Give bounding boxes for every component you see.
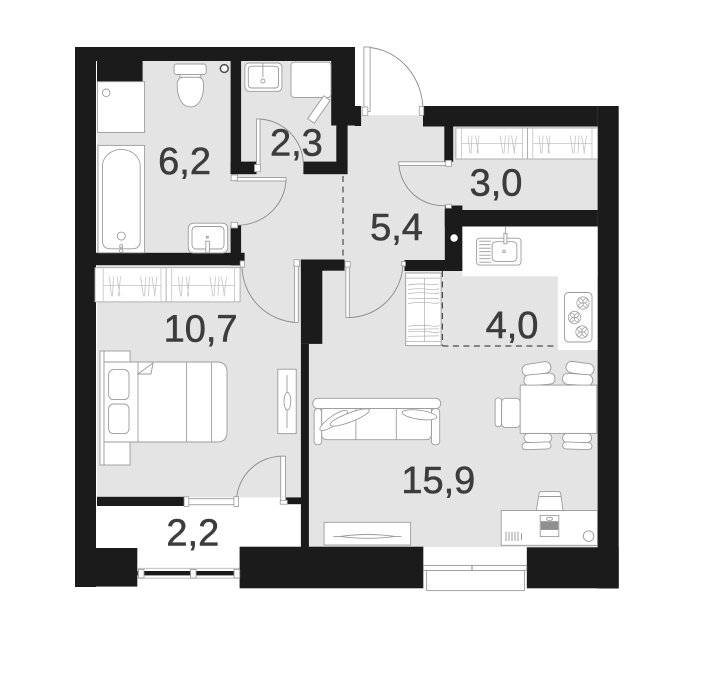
svg-text:3,0: 3,0 [470,163,523,205]
svg-text:6,2: 6,2 [158,141,211,183]
svg-text:15,9: 15,9 [401,460,475,502]
svg-text:4,0: 4,0 [486,305,539,347]
svg-text:5,4: 5,4 [370,207,423,249]
svg-text:2,2: 2,2 [166,512,219,554]
svg-text:2,3: 2,3 [270,122,323,164]
svg-text:10,7: 10,7 [164,309,238,351]
